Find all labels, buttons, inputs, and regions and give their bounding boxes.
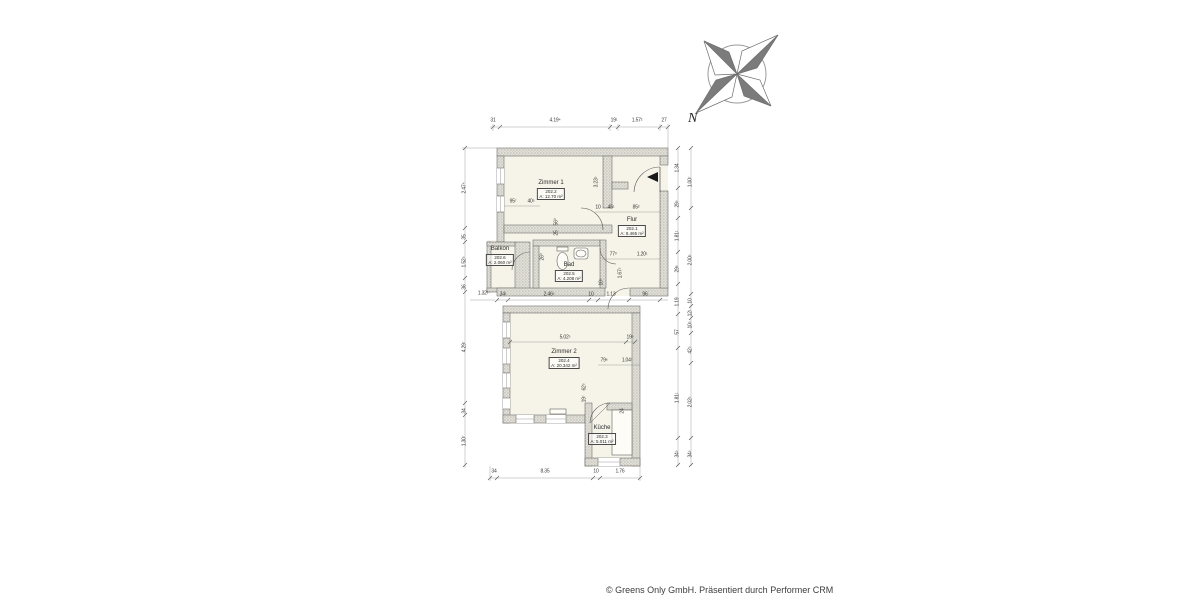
dim-label: 19⁷ — [583, 396, 588, 403]
room-area: A: 5.011 m² — [591, 439, 614, 444]
dim-label: 34⁵ — [676, 450, 681, 457]
room-name: Flur — [618, 217, 646, 224]
room-label-zimmer2: Zimmer 2 202.4 A: 20.342 m² — [549, 349, 580, 369]
dim-label: 35 — [463, 234, 468, 239]
wall — [612, 182, 628, 189]
dim-label: 1.67⁵ — [619, 268, 624, 279]
dim-label: 10⁵ — [689, 321, 694, 328]
dim-label: 24 — [621, 408, 626, 413]
room-area: A: 2.060 m² — [488, 260, 511, 265]
wall — [503, 415, 585, 423]
dim-label: 42⁵ — [689, 346, 694, 353]
dim-label: 19¹ — [611, 119, 618, 124]
dim-label: 96 — [642, 293, 647, 298]
wall — [660, 156, 668, 165]
room-area: A: 12.70 m² — [539, 194, 562, 199]
room-name: Zimmer 2 — [549, 349, 580, 356]
dim-label: 1.30⁷ — [463, 436, 468, 447]
dim-label: 34¹ — [500, 293, 507, 298]
dim-label: 1.20¹ — [637, 253, 647, 258]
compass-north-label: N — [687, 111, 698, 126]
dim-label: 8.35 — [541, 470, 550, 475]
wall — [533, 246, 539, 288]
dim-label: 85² — [633, 206, 640, 211]
room-label-kueche: Küche 202.3 A: 5.011 m² — [588, 425, 616, 445]
dim-label: 1.81¹ — [676, 393, 681, 403]
wall — [603, 156, 612, 208]
compass-rose: N — [685, 28, 789, 128]
wall — [497, 148, 668, 156]
window-icon — [598, 458, 620, 466]
dim-label: 26⁰ — [541, 254, 546, 261]
dim-label: 2.02⁵ — [689, 397, 694, 408]
window-icon — [503, 398, 510, 409]
dim-label: 5.02⁵ — [560, 336, 571, 341]
room-name: Küche — [588, 425, 616, 432]
room-info-box: 202.6 A: 2.060 m² — [486, 254, 514, 267]
dim-label: 1.32¹ — [478, 292, 488, 297]
dim-label: 34 — [463, 408, 468, 413]
room-name: Balkon — [486, 246, 514, 253]
floorplan-page: 31 4.19⁴ 19¹ 1.57² 27 34¹ 2.46⁵ 10 1.13 … — [0, 0, 1200, 600]
window-icon — [503, 322, 510, 338]
dim-label: 62⁵ — [583, 383, 588, 390]
room-label-flur: Flur 202.1 A: 8.465 m² — [618, 217, 646, 237]
dim-label: 2.00⁵ — [689, 255, 694, 266]
window-icon — [503, 373, 510, 388]
dim-label: 36 — [463, 284, 468, 289]
dim-label: 1.04⁷ — [622, 359, 633, 364]
dim-label: 10 — [593, 470, 598, 475]
floorplan: 31 4.19⁴ 19¹ 1.57² 27 34¹ 2.46⁵ 10 1.13 … — [450, 110, 700, 500]
wall — [630, 288, 668, 296]
dim-label: 31 — [490, 119, 495, 124]
room-area: A: 4.208 m² — [557, 276, 580, 281]
room-info-box: 202.2 A: 12.70 m² — [537, 188, 565, 201]
dim-label: 29⁵ — [676, 200, 681, 207]
room-label-zimmer1: Zimmer 1 202.2 A: 12.70 m² — [537, 180, 565, 200]
radiator-icon — [550, 409, 566, 414]
wall — [660, 191, 668, 288]
window-icon — [516, 415, 534, 423]
dim-label: 1.57² — [632, 119, 642, 124]
window-icon — [497, 168, 504, 184]
dim-label: 57 — [676, 329, 681, 334]
wall — [533, 240, 600, 246]
dim-label: 4.29⁷ — [463, 342, 468, 353]
toilet-tank-icon — [557, 247, 568, 251]
dim-label: 1.81¹ — [676, 231, 681, 241]
dim-label: 4.19⁴ — [550, 119, 561, 124]
dim-label: 95⁷ — [510, 200, 517, 205]
room-area: A: 8.465 m² — [620, 231, 643, 236]
dim-label: 10 — [595, 206, 600, 211]
sink-basin-icon — [576, 250, 586, 257]
room-info-box: 202.4 A: 20.342 m² — [549, 357, 580, 370]
floorplan-drawing — [450, 110, 700, 500]
dim-label: 2.46⁵ — [544, 293, 555, 298]
dim-label: 19⁵ — [626, 336, 633, 341]
dim-label: 10 — [588, 293, 593, 298]
dim-label: 34⁵ — [689, 450, 694, 457]
dim-label: 1.76 — [616, 470, 625, 475]
dim-label: 1.34 — [676, 164, 681, 173]
wall — [515, 242, 530, 292]
dim-label: 56⁰ — [555, 219, 560, 226]
dim-label: 1.19 — [676, 298, 681, 307]
window-icon — [503, 348, 510, 364]
dim-label: 3.23⁵ — [595, 177, 600, 188]
dim-label: 2.47⁴ — [463, 183, 468, 194]
footer-credit: © Greens Only GmbH. Präsentiert durch Pe… — [606, 585, 833, 595]
dim-label: 10⁵ — [600, 278, 605, 285]
room-label-bad: Bad 202.5 A: 4.208 m² — [555, 262, 583, 282]
dim-label: 34 — [491, 470, 496, 475]
dim-label: 27 — [661, 119, 666, 124]
dim-label: 1.00⁷ — [689, 177, 694, 188]
dim-label: 1.52⁹ — [463, 257, 468, 268]
dim-label: 1.13 — [607, 293, 616, 298]
dim-label: 79⁶ — [600, 359, 607, 364]
dim-label: 25 — [555, 230, 560, 235]
dim-label: 29⁶ — [676, 265, 681, 272]
dim-label: 12¹ — [689, 310, 694, 317]
room-info-box: 202.3 A: 5.011 m² — [588, 433, 616, 446]
room-info-box: 202.5 A: 4.208 m² — [555, 270, 583, 283]
window-icon — [497, 196, 504, 212]
dim-label: 45¹ — [608, 206, 615, 211]
dim-label: 77³ — [610, 253, 617, 258]
dim-label: 10 — [689, 298, 694, 303]
wall — [503, 306, 640, 313]
dim-label: 40⁵ — [527, 200, 534, 205]
room-info-box: 202.1 A: 8.465 m² — [618, 225, 646, 238]
room-label-balkon: Balkon 202.6 A: 2.060 m² — [486, 246, 514, 266]
room-name: Bad — [555, 262, 583, 269]
room-name: Zimmer 1 — [537, 180, 565, 187]
window-icon — [546, 415, 566, 423]
room-area: A: 20.342 m² — [551, 363, 577, 368]
